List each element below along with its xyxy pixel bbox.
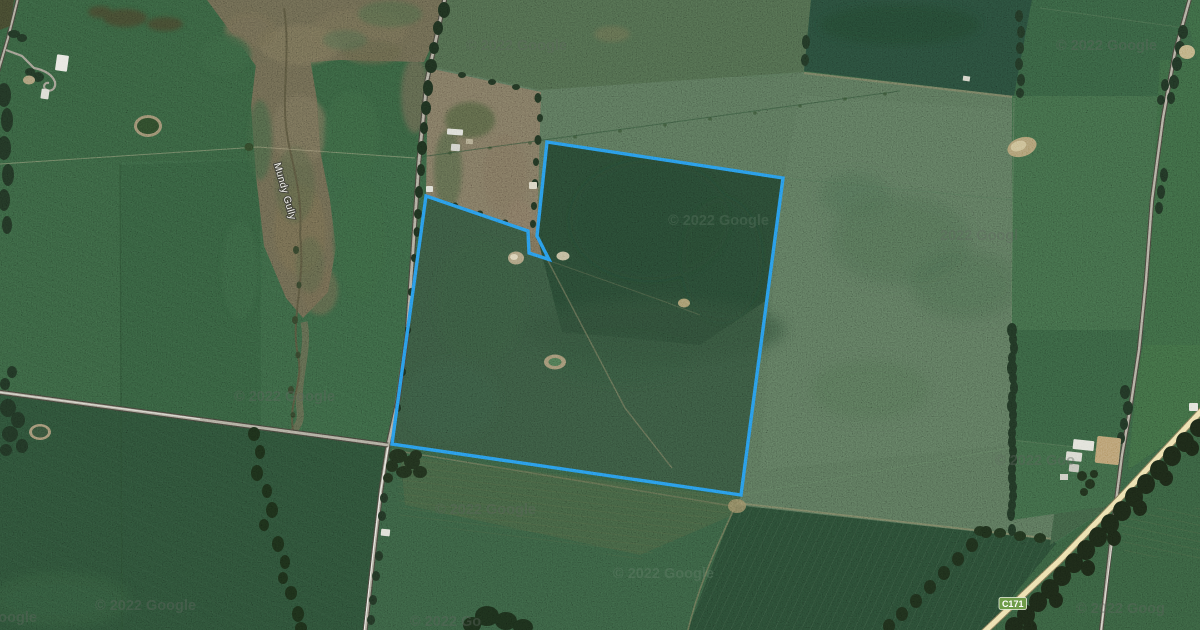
svg-text:© 2022 Goog: © 2022 Goog (1076, 601, 1165, 617)
svg-text:© 2022 Google: © 2022 Google (613, 566, 714, 582)
svg-text:© 2022 Google: © 2022 Google (95, 598, 196, 614)
svg-text:© 2022 Google: © 2022 Google (435, 502, 536, 518)
svg-text:© 2022 Google: © 2022 Google (1056, 38, 1157, 54)
svg-text:2022 Googl: 2022 Googl (940, 228, 1018, 244)
svg-text:© 2022 Google: © 2022 Google (668, 213, 769, 229)
svg-text:© 2022 Goo: © 2022 Goo (995, 453, 1075, 469)
svg-text:© 2022 Google: © 2022 Google (234, 389, 335, 405)
svg-text:Google: Google (0, 610, 37, 626)
svg-text:© 2022 Google: © 2022 Google (466, 38, 567, 54)
svg-text:© 2022 Go: © 2022 Go (410, 614, 481, 630)
svg-text:C171: C171 (1002, 599, 1024, 609)
